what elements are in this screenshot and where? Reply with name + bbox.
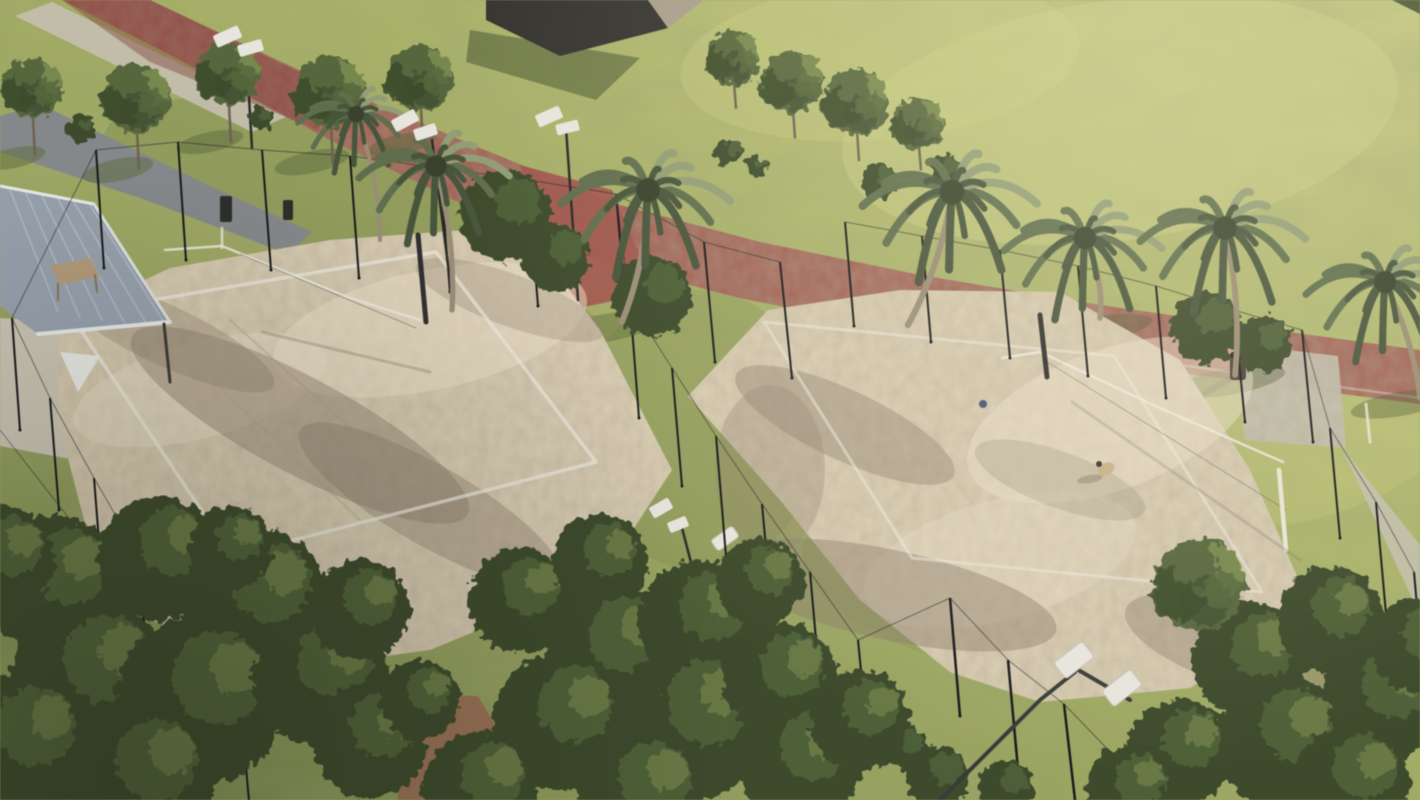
corner-vignette <box>0 0 1420 800</box>
layer-atmosphere <box>0 0 1420 800</box>
rendering-image: Aerial 3D architectural rendering of a p… <box>0 0 1420 800</box>
aerial-park-render-svg: Aerial 3D architectural rendering of a p… <box>0 0 1420 800</box>
